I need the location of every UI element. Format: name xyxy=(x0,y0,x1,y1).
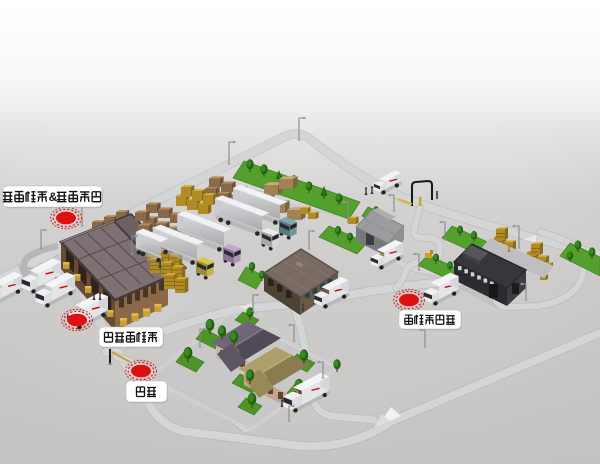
svg-text:&: & xyxy=(49,190,58,204)
